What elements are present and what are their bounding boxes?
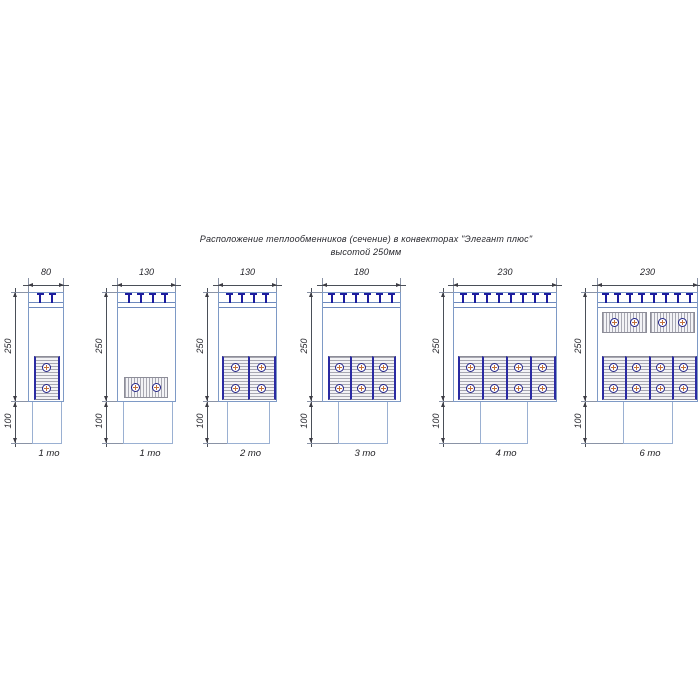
tube-circle: [609, 384, 618, 393]
height-extension-line: [203, 443, 227, 444]
mounting-clip-icon: [472, 293, 479, 303]
tube-circle: [610, 318, 619, 327]
width-dimension-value: 180: [342, 267, 382, 277]
mounting-clip-icon: [137, 293, 144, 303]
dimension-arrow-icon: [218, 283, 223, 287]
mounting-clip-icon: [496, 293, 503, 303]
tube-circle: [632, 363, 641, 372]
type-label: 1 то: [130, 448, 170, 459]
dimension-arrow-icon: [441, 396, 445, 401]
duct-height-dimension-value: 100: [94, 405, 104, 437]
tube-circle: [231, 384, 240, 393]
dimension-arrow-icon: [441, 292, 445, 297]
mounting-clip-icon: [602, 293, 609, 303]
height-dimension-line: [443, 288, 444, 447]
dimension-arrow-icon: [583, 292, 587, 297]
width-dimension-line: [592, 285, 700, 286]
heat-exchanger-unit: [650, 312, 695, 333]
tube-circle: [679, 384, 688, 393]
mounting-clip-icon: [37, 293, 44, 303]
height-dimension-line: [15, 288, 16, 447]
dimension-arrow-icon: [583, 438, 587, 443]
mounting-clip-icon: [262, 293, 269, 303]
mounting-clip-icon: [460, 293, 467, 303]
tube-circle: [490, 363, 499, 372]
body-height-dimension-value: 250: [195, 330, 205, 362]
tube-circle: [335, 363, 344, 372]
mounting-clip-icon: [161, 293, 168, 303]
tube-circle: [231, 363, 240, 372]
mounting-clip-icon: [376, 293, 383, 303]
mounting-clip-icon: [49, 293, 56, 303]
type-label: 2 то: [231, 448, 271, 459]
air-duct: [623, 402, 673, 444]
mounting-clip-icon: [544, 293, 551, 303]
tube-circle: [679, 363, 688, 372]
height-dimension-line: [106, 288, 107, 447]
air-duct: [32, 402, 62, 444]
dimension-arrow-icon: [28, 283, 33, 287]
top-band-line: [29, 302, 63, 303]
dimension-arrow-icon: [13, 402, 17, 407]
width-dimension-line: [317, 285, 406, 286]
dimension-arrow-icon: [693, 283, 698, 287]
mounting-clip-icon: [532, 293, 539, 303]
body-height-dimension-value: 250: [299, 330, 309, 362]
dimension-arrow-icon: [205, 438, 209, 443]
tube-circle: [632, 384, 641, 393]
dimension-arrow-icon: [552, 283, 557, 287]
mounting-clip-icon: [626, 293, 633, 303]
tube-circle: [357, 363, 366, 372]
height-extension-line: [439, 443, 480, 444]
dimension-arrow-icon: [117, 283, 122, 287]
top-band-line: [219, 307, 276, 308]
tube-circle: [514, 363, 523, 372]
dimension-arrow-icon: [205, 396, 209, 401]
air-duct: [227, 402, 270, 444]
top-band-line: [598, 302, 697, 303]
type-label: 1 то: [29, 448, 69, 459]
width-dimension-value: 230: [485, 267, 525, 277]
mounting-clip-icon: [250, 293, 257, 303]
mounting-clip-icon: [238, 293, 245, 303]
tube-circle: [379, 363, 388, 372]
tube-circle: [514, 384, 523, 393]
duct-height-dimension-value: 100: [3, 405, 13, 437]
height-extension-line: [102, 443, 123, 444]
tube-circle: [335, 384, 344, 393]
duct-height-dimension-value: 100: [431, 405, 441, 437]
tube-circle: [257, 384, 266, 393]
tube-circle: [42, 384, 51, 393]
dimension-arrow-icon: [583, 402, 587, 407]
body-height-dimension-value: 250: [431, 330, 441, 362]
air-duct: [480, 402, 528, 444]
duct-height-dimension-value: 100: [195, 405, 205, 437]
dimension-arrow-icon: [441, 402, 445, 407]
dimension-arrow-icon: [309, 396, 313, 401]
height-dimension-line: [311, 288, 312, 447]
dimension-arrow-icon: [104, 438, 108, 443]
mounting-clip-icon: [614, 293, 621, 303]
mounting-clip-icon: [674, 293, 681, 303]
tube-circle: [42, 363, 51, 372]
mounting-clip-icon: [638, 293, 645, 303]
dimension-arrow-icon: [309, 292, 313, 297]
mounting-clip-icon: [650, 293, 657, 303]
dimension-arrow-icon: [583, 396, 587, 401]
width-dimension-line: [448, 285, 562, 286]
dimension-arrow-icon: [322, 283, 327, 287]
dimension-arrow-icon: [309, 438, 313, 443]
mounting-clip-icon: [686, 293, 693, 303]
body-height-dimension-value: 250: [3, 330, 13, 362]
heat-exchanger-unit: [602, 312, 647, 333]
dimension-arrow-icon: [597, 283, 602, 287]
technical-drawing-canvas: Расположение теплообменников (сечение) в…: [0, 0, 700, 700]
dimension-arrow-icon: [441, 438, 445, 443]
mounting-clip-icon: [125, 293, 132, 303]
drawing-title-line1: Расположение теплообменников (сечение) в…: [146, 234, 586, 244]
drawing-title-line2: высотой 250мм: [146, 247, 586, 257]
height-dimension-line: [585, 288, 586, 447]
dimension-arrow-icon: [309, 402, 313, 407]
width-dimension-value: 130: [228, 267, 268, 277]
mounting-clip-icon: [352, 293, 359, 303]
dimension-arrow-icon: [13, 292, 17, 297]
mounting-clip-icon: [328, 293, 335, 303]
top-band-line: [454, 307, 556, 308]
width-dimension-value: 130: [127, 267, 167, 277]
tube-circle: [538, 384, 547, 393]
mounting-clip-icon: [226, 293, 233, 303]
type-label: 6 то: [630, 448, 670, 459]
top-band-line: [118, 307, 175, 308]
dimension-arrow-icon: [396, 283, 401, 287]
dimension-arrow-icon: [453, 283, 458, 287]
height-extension-line: [307, 443, 338, 444]
air-duct: [338, 402, 388, 444]
body-height-dimension-value: 250: [94, 330, 104, 362]
tube-circle: [538, 363, 547, 372]
dimension-arrow-icon: [205, 402, 209, 407]
dimension-arrow-icon: [59, 283, 64, 287]
mounting-clip-icon: [520, 293, 527, 303]
type-label: 3 то: [345, 448, 385, 459]
tube-circle: [490, 384, 499, 393]
duct-height-dimension-value: 100: [299, 405, 309, 437]
body-height-dimension-value: 250: [573, 330, 583, 362]
mounting-clip-icon: [149, 293, 156, 303]
tube-circle: [379, 384, 388, 393]
tube-circle: [466, 363, 475, 372]
dimension-arrow-icon: [13, 396, 17, 401]
duct-height-dimension-value: 100: [573, 405, 583, 437]
mounting-clip-icon: [484, 293, 491, 303]
dimension-arrow-icon: [104, 292, 108, 297]
tube-circle: [152, 383, 161, 392]
tube-circle: [357, 384, 366, 393]
top-band-line: [454, 302, 556, 303]
tube-circle: [609, 363, 618, 372]
tube-circle: [656, 384, 665, 393]
dimension-arrow-icon: [272, 283, 277, 287]
mounting-clip-icon: [388, 293, 395, 303]
top-band-line: [323, 307, 400, 308]
height-dimension-line: [207, 288, 208, 447]
height-extension-line: [581, 443, 623, 444]
air-duct: [123, 402, 173, 444]
width-dimension-value: 230: [628, 267, 668, 277]
dimension-arrow-icon: [171, 283, 176, 287]
mounting-clip-icon: [340, 293, 347, 303]
tube-circle: [466, 384, 475, 393]
mounting-clip-icon: [662, 293, 669, 303]
tube-circle: [658, 318, 667, 327]
width-dimension-value: 80: [26, 267, 66, 277]
mounting-clip-icon: [364, 293, 371, 303]
type-label: 4 то: [486, 448, 526, 459]
tube-circle: [257, 363, 266, 372]
dimension-arrow-icon: [104, 396, 108, 401]
mounting-clip-icon: [508, 293, 515, 303]
tube-circle: [656, 363, 665, 372]
dimension-arrow-icon: [104, 402, 108, 407]
top-band-line: [29, 307, 63, 308]
top-band-line: [598, 307, 697, 308]
dimension-arrow-icon: [205, 292, 209, 297]
height-extension-line: [11, 443, 32, 444]
dimension-arrow-icon: [13, 438, 17, 443]
